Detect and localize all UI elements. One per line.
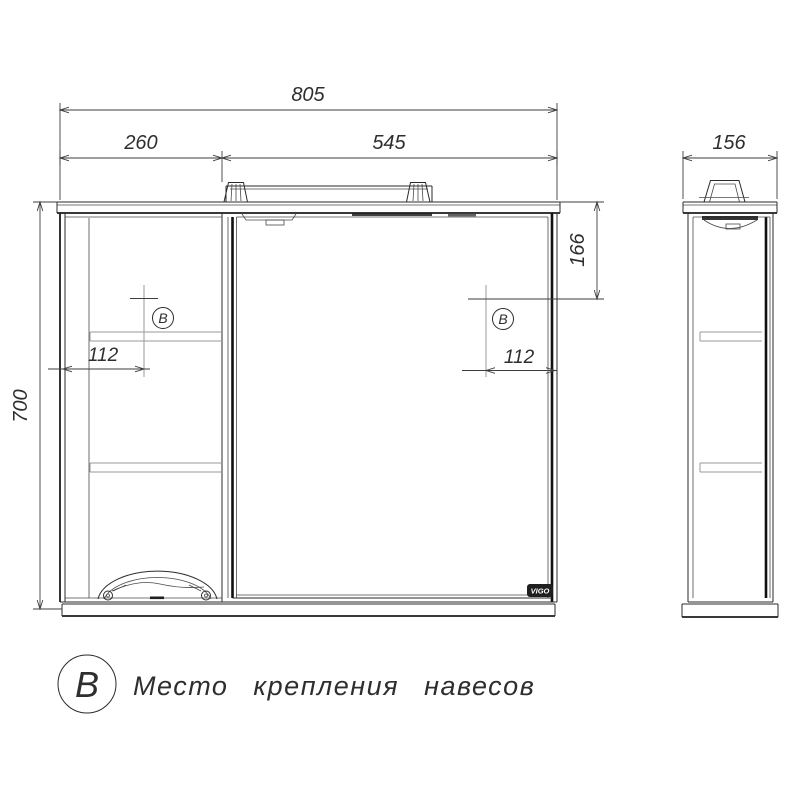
technical-drawing-page: VIGO В В — [0, 0, 800, 800]
marker-letter-right: В — [498, 311, 507, 327]
lamp-underside-side — [702, 216, 758, 229]
dimension-hanger-offset-left: 112 — [48, 345, 150, 372]
mirror-cabinet-drawing: VIGO В В — [0, 0, 800, 800]
plinth-side — [682, 604, 778, 617]
dimension-height: 700 — [10, 202, 62, 609]
dimension-sections: 260 545 — [60, 132, 557, 182]
brand-badge: VIGO — [527, 584, 553, 597]
lamp-front — [224, 183, 432, 203]
screw-left-icon — [104, 591, 113, 600]
dim-700-label: 700 — [10, 389, 32, 422]
dim-805-label: 805 — [291, 84, 325, 106]
dimension-hanger-offset-right: 112 — [462, 347, 557, 373]
dim-545-label: 545 — [372, 132, 406, 154]
dimension-depth: 156 — [683, 132, 777, 199]
legend-symbol-letter: В — [75, 664, 99, 705]
front-view: VIGO В В — [57, 183, 560, 617]
hanger-mark-left: В — [130, 285, 174, 377]
legend-description: Место крепления навесов — [133, 671, 535, 701]
brand-badge-label: VIGO — [531, 587, 550, 596]
cornice-front — [57, 202, 560, 213]
legend: В Место крепления навесов — [58, 655, 535, 713]
dim-112-right-label: 112 — [504, 347, 535, 368]
under-cornice-details — [242, 213, 476, 225]
dim-166-label: 166 — [567, 232, 589, 266]
dim-260-label: 260 — [123, 132, 157, 154]
marker-letter-left: В — [158, 310, 167, 326]
dome-applique — [98, 571, 217, 600]
lamp-shadow-strip — [352, 213, 432, 216]
side-view — [682, 181, 778, 618]
side-shelves — [700, 332, 762, 472]
plinth-front — [62, 604, 555, 616]
dimension-hanger-vertical: 166 — [468, 202, 604, 299]
cornice-side — [683, 202, 777, 213]
dim-112-left-label: 112 — [88, 345, 119, 366]
carcass-side — [688, 213, 773, 602]
lamp-side — [699, 181, 749, 203]
dim-156-label: 156 — [712, 132, 746, 154]
carcass-front — [60, 213, 557, 602]
